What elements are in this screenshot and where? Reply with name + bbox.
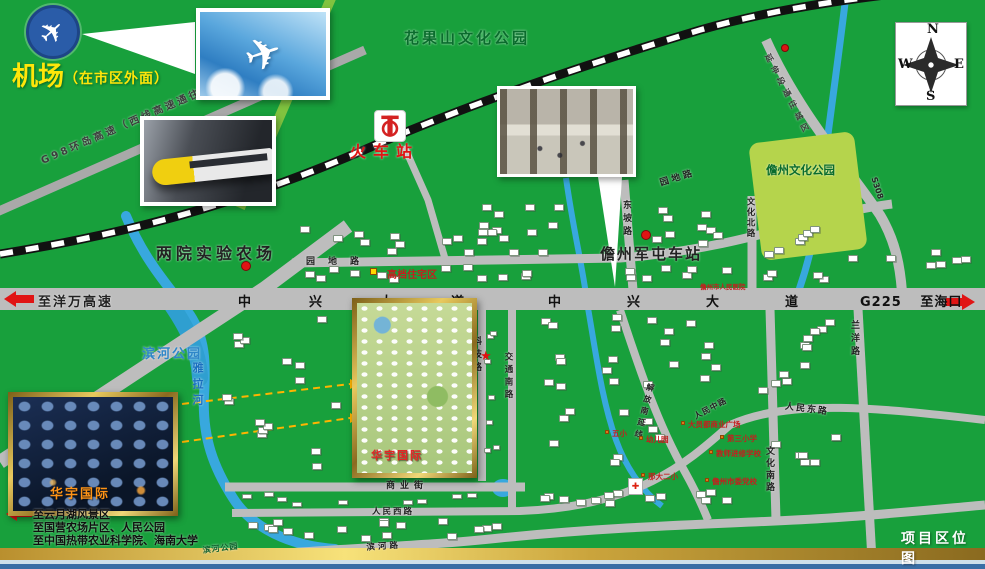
building-cluster-block xyxy=(610,459,620,466)
residence-area-label: 高档住宅区 xyxy=(387,266,437,281)
light-bar xyxy=(0,560,985,564)
building-cluster-block xyxy=(395,241,405,248)
building-cluster-block xyxy=(312,463,322,470)
residence-marker xyxy=(370,268,377,275)
building-cluster-block xyxy=(354,231,364,238)
to-yangwan-label: 至洋万高速 xyxy=(38,291,113,310)
binhe-park-label: 滨河公园 xyxy=(142,343,202,362)
station-hall-photo xyxy=(497,86,636,177)
g225-label: G225 至海口 xyxy=(860,291,962,310)
building-cluster-block xyxy=(605,500,615,507)
building-cluster-block xyxy=(810,459,820,466)
building-cluster-block xyxy=(277,497,287,502)
kindergarten-label: 幼儿园 xyxy=(646,434,669,445)
building-cluster-block xyxy=(704,342,714,349)
compass-n: N xyxy=(927,22,939,37)
building-cluster-block xyxy=(442,238,452,245)
building-cluster-block xyxy=(556,383,566,390)
building-cluster-block xyxy=(548,322,558,329)
building-cluster-block xyxy=(626,274,636,281)
airplane-photo: ✈ xyxy=(196,8,330,100)
legend-line-2: 至国营农场片区、人民公园 xyxy=(33,521,198,534)
airplane-silhouette-icon: ✈ xyxy=(238,24,289,84)
building-cluster-block xyxy=(848,255,858,262)
building-cluster-block xyxy=(499,235,509,242)
dayuandu-marker xyxy=(681,421,685,425)
huaguoshan-park-label: 花果山文化公园 xyxy=(404,27,530,48)
building-cluster-block xyxy=(396,522,406,529)
building-cluster-block xyxy=(527,229,537,236)
building-cluster-block xyxy=(706,489,716,496)
building-cluster-block xyxy=(360,239,370,246)
map-title: 项目区位图 xyxy=(901,528,985,568)
railway-station-label: 火车站 xyxy=(350,138,419,162)
jiaotong-south-road-label: 交通南路 xyxy=(502,352,514,402)
masterplan-image: 华宇国际 xyxy=(357,303,472,473)
building-cluster-block xyxy=(273,519,283,526)
building-cluster-block xyxy=(701,353,711,360)
building-cluster-block xyxy=(722,497,732,504)
building-cluster-block xyxy=(490,331,497,336)
building-cluster-block xyxy=(282,358,292,365)
building-cluster-block xyxy=(441,265,451,272)
building-cluster-block xyxy=(831,434,841,441)
compass-w: W xyxy=(898,57,913,72)
building-cluster-block xyxy=(548,222,558,229)
dayuandu-plaza-label: 大员都商业广场 xyxy=(688,419,741,430)
airport-icon: ✈ xyxy=(26,5,80,59)
g225-number: G225 xyxy=(860,295,902,310)
building-cluster-block xyxy=(292,502,302,507)
gold-bar xyxy=(0,548,985,560)
building-cluster-block xyxy=(686,320,696,327)
building-cluster-block xyxy=(479,222,489,229)
liangyuan-farm-label: 两院实验农场 xyxy=(156,240,276,264)
building-cluster-block xyxy=(317,316,327,323)
jinxiu-marker xyxy=(709,450,713,454)
jinxiu-school-label: 教师进修学校 xyxy=(716,448,761,459)
building-cluster-block xyxy=(316,275,326,282)
building-cluster-block xyxy=(255,419,265,426)
project-masterplan-frame: 华宇国际 xyxy=(352,298,477,478)
building-cluster-block xyxy=(813,272,823,279)
building-cluster-block xyxy=(338,500,348,505)
building-cluster-block xyxy=(554,204,564,211)
building-cluster-block xyxy=(387,248,397,255)
compass: N E S W xyxy=(895,22,967,106)
building-cluster-block xyxy=(687,266,697,273)
farm-marker-dot xyxy=(241,261,251,271)
building-cluster-block xyxy=(682,272,692,279)
building-cluster-block xyxy=(565,408,575,415)
binhe-road-label: 滨河路 xyxy=(366,539,401,553)
building-cluster-block xyxy=(305,271,315,278)
wuxiao-school-label: 五小 xyxy=(612,428,627,439)
building-cluster-block xyxy=(608,356,618,363)
building-cluster-block xyxy=(311,448,321,455)
building-cluster-block xyxy=(591,497,601,504)
building-cluster-block xyxy=(700,375,710,382)
wenhua-north-road-label: 文化北路 xyxy=(744,197,756,239)
building-cluster-block xyxy=(625,268,635,275)
building-cluster-block xyxy=(268,526,278,533)
to-haikou-label: 至海口 xyxy=(920,295,962,310)
building-cluster-block xyxy=(248,522,258,529)
train-silhouette xyxy=(151,148,275,187)
building-cluster-block xyxy=(926,262,936,269)
building-cluster-block xyxy=(417,499,427,504)
building-cluster-block xyxy=(337,526,347,533)
yuandi-road-label: 园地路 xyxy=(306,254,372,267)
building-cluster-block xyxy=(619,409,629,416)
wuxiao-marker xyxy=(605,430,609,434)
building-cluster-block xyxy=(477,238,487,245)
building-cluster-block xyxy=(669,361,679,368)
building-cluster-block xyxy=(701,497,711,504)
project-location-star: ★ xyxy=(480,349,492,364)
hospital-logo: ✚ xyxy=(628,478,643,495)
party-school-marker xyxy=(705,478,709,482)
building-cluster-block xyxy=(602,367,612,374)
building-cluster-block xyxy=(329,266,339,273)
building-cluster-block xyxy=(484,448,491,453)
legend-line-3: 至中国热带农业科学院、海南大学 xyxy=(33,534,198,547)
building-cluster-block xyxy=(540,495,550,502)
building-cluster-block xyxy=(467,493,477,498)
building-cluster-block xyxy=(810,328,820,335)
building-cluster-block xyxy=(382,532,392,539)
building-cluster-block xyxy=(452,494,462,499)
road-marker-dot xyxy=(781,44,789,52)
building-cluster-block xyxy=(559,415,569,422)
building-cluster-block xyxy=(492,523,502,530)
building-cluster-block xyxy=(522,270,532,277)
building-cluster-block xyxy=(295,377,305,384)
building-cluster-block xyxy=(438,518,448,525)
building-cluster-block xyxy=(713,232,723,239)
building-cluster-block xyxy=(300,226,310,233)
hospital-cross-icon: ✚ xyxy=(632,482,640,492)
building-cluster-block xyxy=(474,526,484,533)
building-cluster-block xyxy=(283,528,293,535)
airport-label: 机场（在市区外面） xyxy=(12,56,169,93)
building-cluster-block xyxy=(493,445,500,450)
location-map: ✈ 华宇国际 华宇国际 ✈ 机场（在市区外面） 火车站 N E S W 花果山文 xyxy=(0,0,985,569)
yala-river-label: 雅拉河 xyxy=(189,362,205,410)
building-cluster-block xyxy=(390,233,400,240)
building-cluster-block xyxy=(931,249,941,256)
kindergarten-marker xyxy=(639,436,643,440)
project-name-on-photo: 华宇国际 xyxy=(50,483,110,502)
building-cluster-block xyxy=(886,255,896,262)
building-cluster-block xyxy=(961,256,971,263)
building-cluster-block xyxy=(810,226,820,233)
building-cluster-block xyxy=(576,499,586,506)
building-cluster-block xyxy=(665,231,675,238)
building-cluster-block xyxy=(544,379,554,386)
danzhou-culture-park-label: 儋州文化公园 xyxy=(766,162,835,178)
building-cluster-block xyxy=(538,249,548,256)
building-cluster-block xyxy=(549,440,559,447)
airport-label-main: 机场 xyxy=(12,62,64,92)
building-cluster-block xyxy=(613,490,623,497)
building-cluster-block xyxy=(233,333,243,340)
building-cluster-block xyxy=(803,335,813,342)
building-cluster-block xyxy=(774,247,784,254)
wenhua-south-road-label: 文化南路 xyxy=(763,446,776,494)
zhongxing-avenue-label-east: 中兴大道 xyxy=(548,291,864,310)
project-night-rendering: 华宇国际 xyxy=(8,392,178,516)
building-cluster-block xyxy=(556,358,566,365)
building-cluster-block xyxy=(264,492,274,497)
building-cluster-block xyxy=(498,274,508,281)
third-primary-marker xyxy=(720,435,724,439)
building-cluster-block xyxy=(798,452,808,459)
building-cluster-block xyxy=(488,395,495,400)
party-school-label: 儋州市委党校 xyxy=(712,476,757,487)
building-cluster-block xyxy=(758,387,768,394)
building-cluster-block xyxy=(936,261,946,268)
building-cluster-block xyxy=(350,270,360,277)
building-cluster-block xyxy=(331,402,341,409)
building-cluster-block xyxy=(645,495,655,502)
station-callout-wedge xyxy=(598,177,622,287)
juntun-station-label: 儋州军屯车站 xyxy=(600,243,702,264)
building-cluster-block xyxy=(379,520,389,527)
building-cluster-block xyxy=(295,362,305,369)
building-cluster-block xyxy=(482,204,492,211)
building-cluster-block xyxy=(825,319,835,326)
building-cluster-block xyxy=(767,270,777,277)
building-cluster-block xyxy=(494,211,504,218)
building-cluster-block xyxy=(764,251,774,258)
building-cluster-block xyxy=(453,235,463,242)
shangye-street-label: 商业街 xyxy=(386,478,428,491)
project-name-on-plan: 华宇国际 xyxy=(371,447,423,463)
building-cluster-block xyxy=(477,275,487,282)
building-cluster-block xyxy=(377,272,387,279)
building-cluster-block xyxy=(478,229,488,236)
danzhou-culture-park-area xyxy=(748,131,868,261)
third-primary-label: 第三小学 xyxy=(727,433,757,444)
building-cluster-block xyxy=(242,494,252,499)
building-cluster-block xyxy=(800,362,810,369)
building-cluster-block xyxy=(664,328,674,335)
compass-s: S xyxy=(926,89,935,104)
building-cluster-block xyxy=(642,275,652,282)
renmin-west-road-label: 人民西路 xyxy=(372,505,414,517)
dongpo-road-label: 东坡路 xyxy=(620,200,633,239)
building-cluster-block xyxy=(487,229,497,236)
building-cluster-block xyxy=(771,380,781,387)
building-cluster-block xyxy=(609,378,619,385)
nada-second-marker xyxy=(641,473,645,477)
building-cluster-block xyxy=(722,267,732,274)
building-cluster-block xyxy=(604,492,614,499)
building-cluster-block xyxy=(304,532,314,539)
legend-line-1: 至云月湖风景区 xyxy=(33,508,198,521)
building-cluster-block xyxy=(648,426,658,433)
plane-glyph-icon: ✈ xyxy=(32,11,74,54)
lanyang-road-label: 兰洋路 xyxy=(848,320,861,359)
building-cluster-block xyxy=(463,264,473,271)
building-cluster-block xyxy=(656,493,666,500)
building-cluster-block xyxy=(509,249,519,256)
building-cluster-block xyxy=(464,249,474,256)
building-cluster-block xyxy=(447,533,457,540)
building-cluster-block xyxy=(658,207,668,214)
compass-e: E xyxy=(954,57,964,72)
juntun-marker-dot xyxy=(641,230,651,240)
building-cluster-block xyxy=(701,211,711,218)
building-cluster-block xyxy=(802,344,812,351)
building-cluster-block xyxy=(663,215,673,222)
legend-block: 至云月湖风景区 至国营农场片区、人民公园 至中国热带农业科学院、海南大学 xyxy=(33,508,198,547)
building-cluster-block xyxy=(661,265,671,272)
building-cluster-block xyxy=(647,317,657,324)
building-cluster-block xyxy=(611,325,621,332)
airport-label-note: （在市区外面） xyxy=(64,71,169,87)
building-cluster-block xyxy=(222,394,232,401)
blue-bar xyxy=(0,564,985,569)
building-cluster-block xyxy=(782,378,792,385)
building-cluster-block xyxy=(559,496,569,503)
building-cluster-block xyxy=(652,236,662,243)
building-cluster-block xyxy=(660,339,670,346)
building-cluster-block xyxy=(486,420,493,425)
nada-second-label: 那大二小 xyxy=(648,471,678,482)
building-cluster-block xyxy=(333,235,343,242)
building-cluster-block xyxy=(800,459,810,466)
building-cluster-block xyxy=(779,371,789,378)
building-cluster-block xyxy=(525,204,535,211)
building-cluster-block xyxy=(612,314,622,321)
station-road xyxy=(404,146,446,262)
train-photo xyxy=(140,116,276,206)
building-cluster-block xyxy=(711,364,721,371)
hospital-label: 儋州市人民医院 xyxy=(700,281,746,291)
